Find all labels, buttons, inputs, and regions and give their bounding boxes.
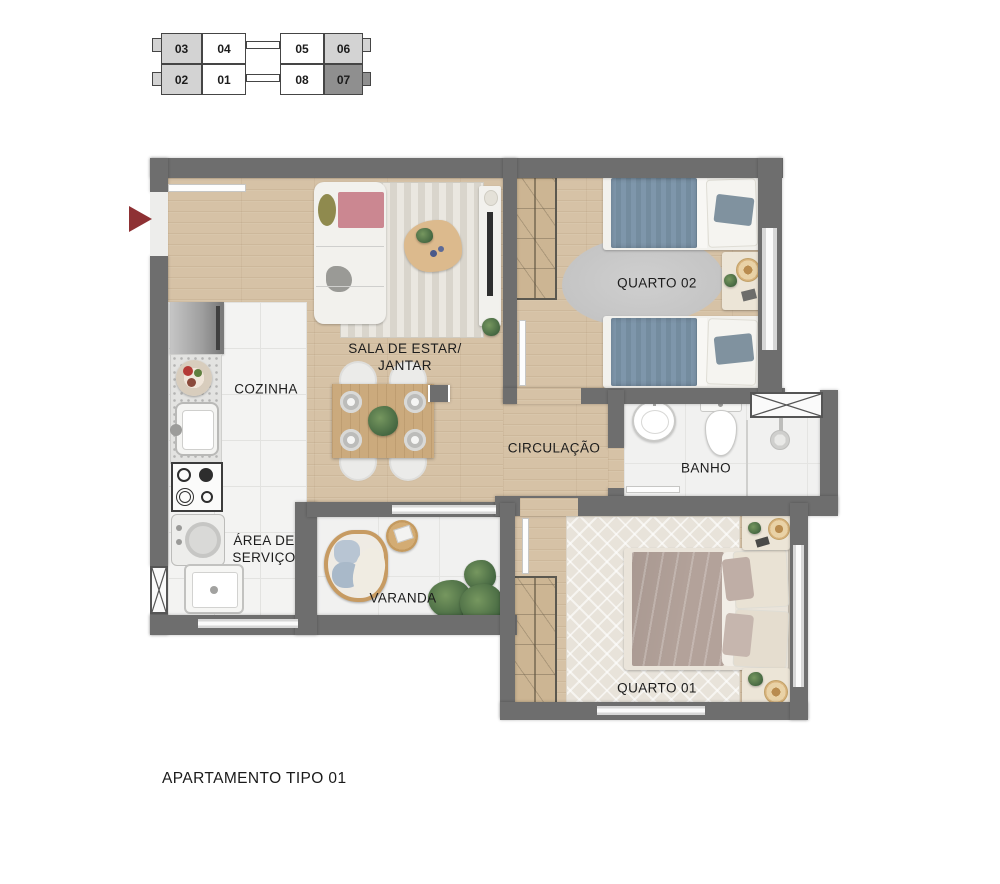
food-platter	[176, 360, 212, 396]
balcony-side-table	[386, 520, 418, 552]
keyplan-unit-label: 07	[337, 73, 350, 87]
floorplan-canvas: 03 04 05 06 02 01 08 07	[0, 0, 1000, 884]
keyplan-unit-label: 01	[217, 73, 230, 87]
keyplan-corridor	[246, 41, 280, 49]
sofa-seam	[316, 246, 384, 247]
place-setting	[404, 391, 426, 413]
label-sala-line2: JANTAR	[378, 358, 432, 373]
tray	[741, 288, 757, 301]
sink-basin	[182, 410, 214, 450]
sofa-pillow-olive	[318, 194, 336, 226]
duvet	[611, 318, 697, 386]
coffee-table	[404, 220, 462, 272]
food	[194, 369, 202, 377]
sofa-pillow-gray	[326, 266, 352, 292]
accent-pillow	[722, 613, 754, 658]
entrance-door-leaf	[168, 184, 246, 192]
keyplan-unit-04: 04	[202, 33, 246, 64]
sofa-seam	[316, 286, 384, 287]
label-sala-line1: SALA DE ESTAR/	[348, 341, 461, 356]
blanket	[632, 552, 724, 666]
bedroom1-wardrobe	[513, 576, 557, 706]
label-sala: SALA DE ESTAR/ JANTAR	[348, 340, 461, 374]
label-quarto02: QUARTO 02	[617, 275, 697, 292]
phone	[755, 536, 770, 547]
toilet-bowl	[705, 410, 737, 456]
service-window	[198, 619, 298, 628]
toilet	[700, 396, 740, 456]
plan-title: APARTAMENTO TIPO 01	[162, 770, 346, 788]
keyplan-unit-label: 08	[295, 73, 308, 87]
tv-screen	[487, 212, 493, 296]
wall-living-bedroom2	[503, 158, 517, 404]
bedroom2-side-table	[722, 252, 762, 310]
sink-bowl	[641, 410, 669, 434]
label-varanda: VARANDA	[369, 590, 436, 607]
burner	[176, 488, 194, 506]
table-decor	[430, 250, 437, 257]
keyplan-unit-02: 02	[161, 64, 202, 95]
bedroom1-door-leaf	[522, 518, 529, 574]
small-plant	[748, 672, 763, 686]
bedroom2-wardrobe	[513, 176, 557, 300]
wall-service-divider	[295, 502, 317, 635]
duvet	[611, 178, 697, 248]
bathroom-door-leaf	[626, 486, 680, 493]
pillow-blue	[714, 333, 755, 365]
place-setting	[404, 429, 426, 451]
bathroom-sink	[632, 400, 676, 442]
balcony-sliding-door	[392, 505, 496, 514]
label-circulacao: CIRCULAÇÃO	[508, 440, 601, 457]
food	[183, 366, 193, 376]
small-plant	[724, 274, 737, 287]
keyplan: 03 04 05 06 02 01 08 07	[150, 28, 372, 98]
bedroom2-window	[762, 228, 777, 350]
bedroom2-bed-a	[603, 176, 761, 250]
refrigerator	[170, 302, 224, 354]
label-banho: BANHO	[681, 460, 731, 477]
table-plant	[416, 228, 433, 243]
stove	[171, 462, 223, 512]
sofa-throw	[338, 192, 384, 228]
centerpiece-plant	[368, 406, 398, 436]
entrance-arrow	[129, 206, 152, 232]
console-speaker	[484, 190, 498, 206]
bathroom-shaft-window	[750, 392, 823, 418]
label-area-line1: ÁREA DE	[233, 533, 294, 548]
washer-drum	[185, 522, 221, 558]
bedroom1-window-bottom	[597, 706, 705, 715]
sink-faucet	[170, 424, 182, 436]
keyplan-unit-03: 03	[161, 33, 202, 64]
place-setting	[340, 429, 362, 451]
wall-left	[150, 158, 168, 192]
lamp	[768, 518, 790, 540]
table-decor	[438, 246, 444, 252]
magazine	[393, 525, 413, 544]
shower-head	[770, 430, 790, 450]
wall-bath-left	[608, 390, 624, 448]
wall-top	[150, 158, 783, 178]
sofa	[314, 182, 386, 324]
keyplan-unit-label: 05	[295, 42, 308, 56]
keyplan-unit-06: 06	[324, 33, 363, 64]
dining-table	[332, 384, 434, 458]
laundry-faucet	[210, 586, 218, 594]
keyplan-unit-07: 07	[324, 64, 363, 95]
keyplan-unit-01: 01	[202, 64, 246, 95]
label-area-servico: ÁREA DE SERVIÇO	[232, 532, 295, 566]
keyplan-unit-08: 08	[280, 64, 324, 95]
pillow-blue	[713, 194, 754, 226]
food	[187, 378, 196, 387]
laundry-window	[150, 566, 168, 614]
fridge-handle	[216, 306, 220, 350]
lamp	[736, 258, 760, 282]
washer-knob	[176, 525, 182, 531]
washing-machine	[171, 514, 225, 566]
lamp	[764, 680, 788, 704]
entrance-opening	[150, 192, 168, 256]
bathroom-door-opening	[608, 448, 624, 488]
place-setting	[340, 391, 362, 413]
bedroom2-door-opening	[517, 388, 581, 404]
bedroom2-door-leaf	[519, 320, 526, 386]
bedroom1-nightstand-top	[742, 514, 790, 550]
wall-left	[150, 256, 168, 566]
accent-pillow	[722, 556, 755, 601]
keyplan-corridor	[246, 74, 280, 82]
burner	[201, 491, 213, 503]
small-plant	[748, 522, 761, 534]
keyplan-unit-label: 04	[217, 42, 230, 56]
keyplan-unit-label: 06	[337, 42, 350, 56]
keyplan-unit-label: 03	[175, 42, 188, 56]
bedroom2-bed-b	[603, 316, 761, 388]
bedroom1-bed	[624, 548, 788, 670]
tv-console	[479, 186, 501, 326]
wall-stub-hall	[428, 385, 450, 402]
shower-divider	[746, 420, 748, 496]
keyplan-unit-05: 05	[280, 33, 324, 64]
label-area-line2: SERVIÇO	[232, 550, 295, 565]
kitchen-sink	[175, 402, 219, 456]
burner	[177, 468, 191, 482]
console-plant	[482, 318, 500, 336]
bedroom1-door-opening	[520, 498, 578, 516]
bedroom1-window-right	[793, 545, 804, 687]
washer-knob	[176, 539, 182, 545]
label-quarto01: QUARTO 01	[617, 680, 697, 697]
label-cozinha: COZINHA	[234, 381, 298, 398]
burner	[199, 468, 213, 482]
keyplan-unit-label: 02	[175, 73, 188, 87]
laundry-sink	[184, 564, 244, 614]
wall-bedroom1-left	[500, 503, 515, 718]
